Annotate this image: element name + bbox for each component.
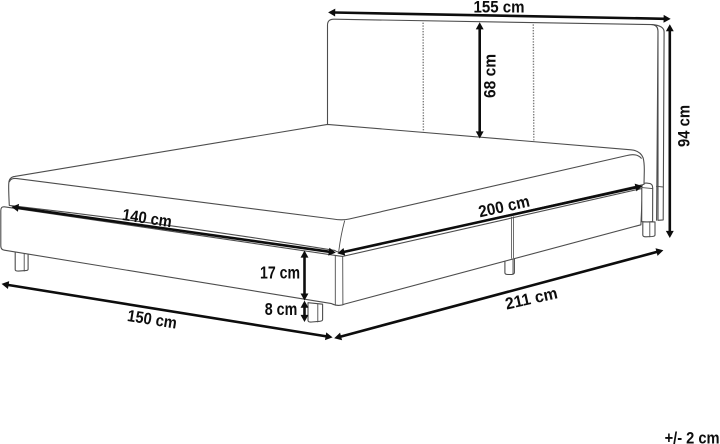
svg-text:211 cm: 211 cm (504, 284, 560, 313)
svg-text:155 cm: 155 cm (474, 0, 525, 16)
svg-text:94 cm: 94 cm (675, 105, 693, 147)
svg-text:+/- 2 cm: +/- 2 cm (665, 430, 720, 444)
svg-text:8 cm: 8 cm (265, 299, 298, 319)
svg-text:17 cm: 17 cm (260, 263, 300, 283)
svg-text:68 cm: 68 cm (481, 54, 499, 98)
